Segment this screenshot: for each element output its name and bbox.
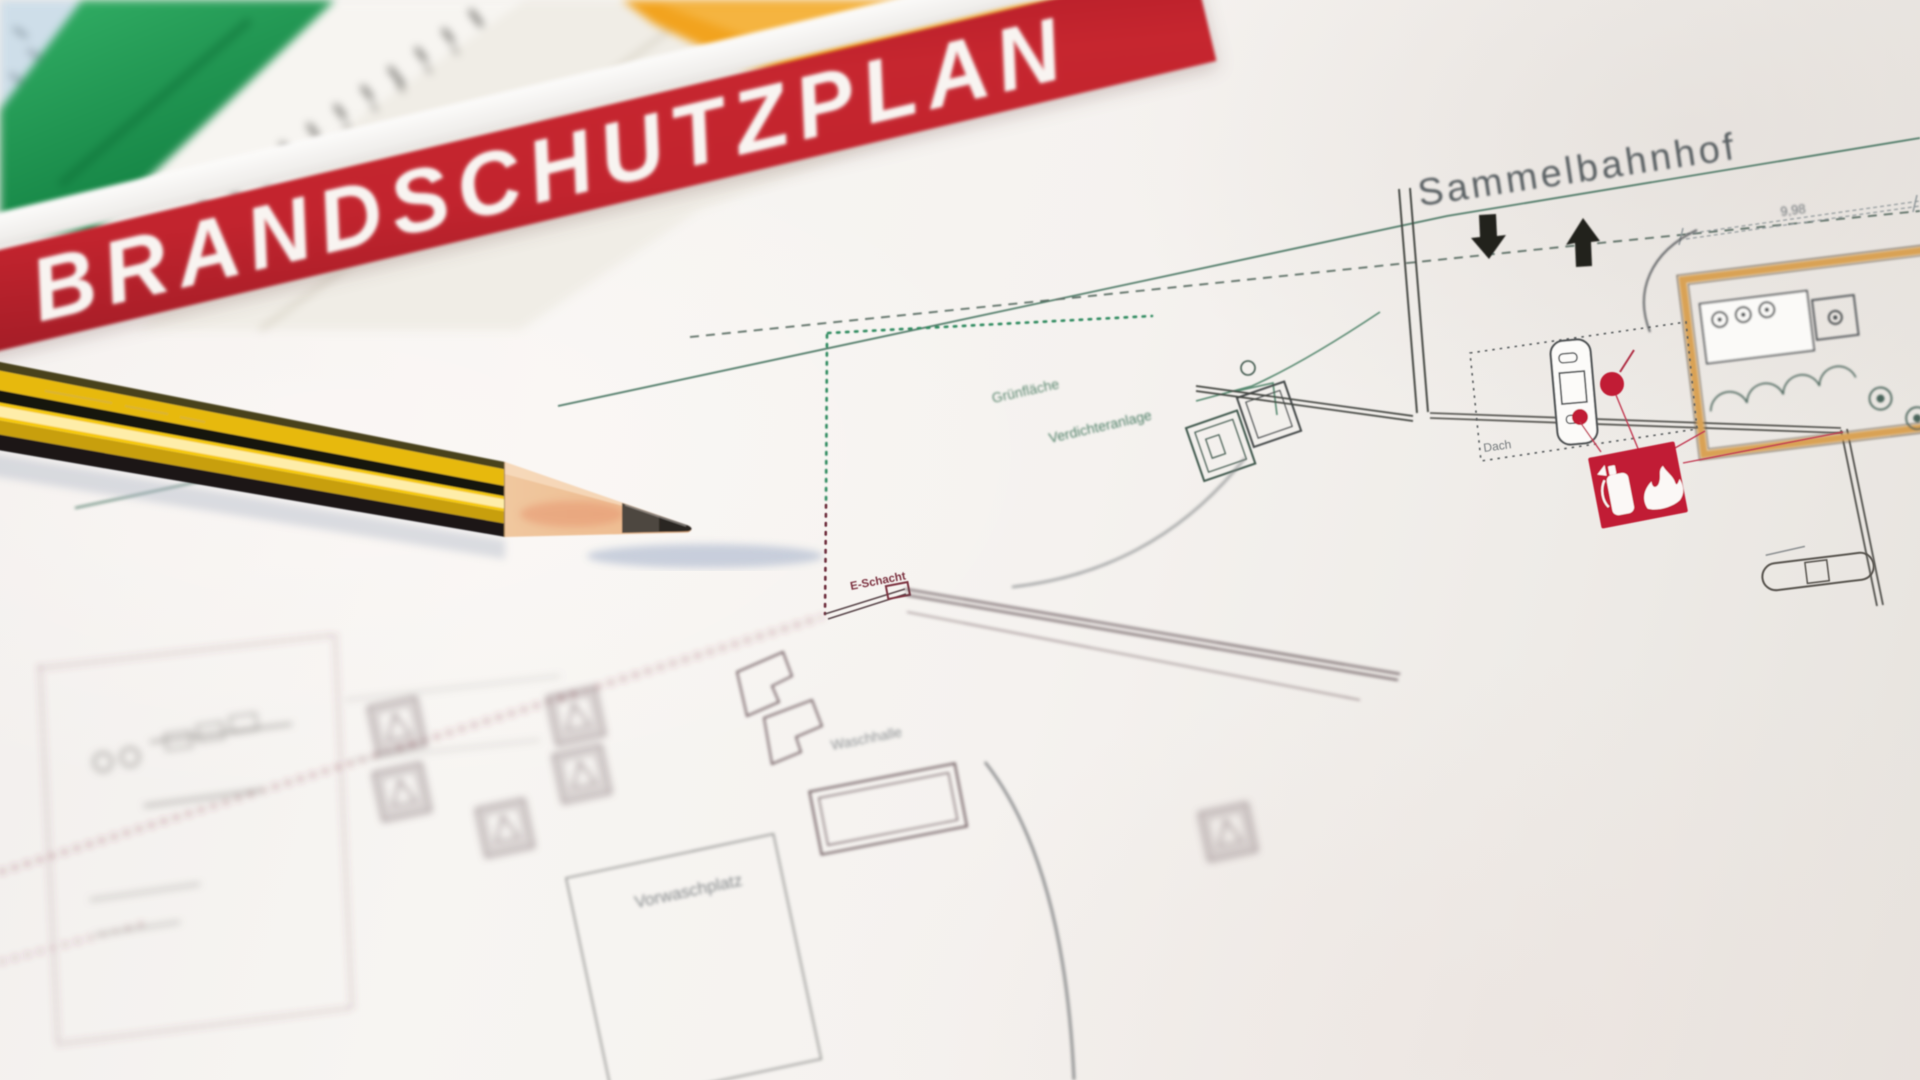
equipment-symbols (369, 688, 1257, 861)
label-vorwaschplatz: Vorwaschplatz (633, 871, 744, 912)
shaft-structure (1759, 538, 1875, 591)
plan-lower-left (0, 617, 1256, 1044)
label-sammelbahnhof: Sammelbahnhof (1415, 126, 1740, 215)
fire-extinguisher-icon (1588, 441, 1688, 528)
pencil-tip-shadow (587, 544, 823, 568)
roof-vent-shaft-icon (1550, 338, 1599, 445)
label-dimension: 9,98 (1780, 201, 1807, 219)
label-e-schacht: E-Schacht (849, 570, 907, 593)
exit-arrow-up-icon (1566, 218, 1600, 267)
photo-scene: BRANDSCHUTZPLAN (0, 0, 1920, 1080)
site-plan-graphic: Sammelbahnhof 9,98 Grünfläche Verdichter… (0, 0, 1920, 1080)
wash-bay (809, 763, 966, 854)
entry-arrow-down-icon (1471, 214, 1506, 259)
label-waschhalle: Waschhalle (830, 723, 904, 752)
label-gruenflaeche: Grünfläche (990, 375, 1061, 405)
compressor-building (1182, 382, 1306, 481)
pencil-graphite-tip (622, 503, 692, 533)
label-dach: Dach (1482, 437, 1512, 455)
label-verdichteranlage: Verdichteranlage (1047, 407, 1153, 446)
pencil (0, 358, 823, 568)
plan-upper-linework (558, 138, 1920, 606)
plan-sharp-zone: E-Schacht Dach (825, 322, 1875, 619)
